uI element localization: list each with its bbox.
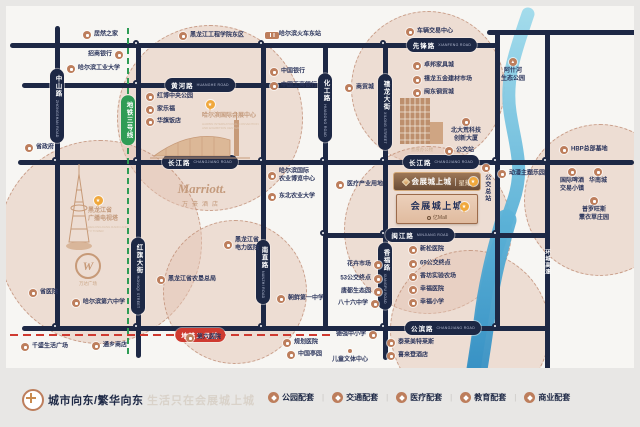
road-junction [133,323,139,329]
road-label-cn: 红旗大街 [133,244,143,274]
convention-center-pin-icon [206,100,215,109]
project-sub-label: 亿Mall [433,214,447,221]
poi-icon [21,343,29,351]
road [545,30,550,368]
poi-label: 黑龙江省农垦总局 [168,276,216,284]
road-label-en: CHANGJIANG ROAD [436,326,475,330]
poi-label: 朝鲜第一中学 [288,295,324,303]
poi-icon [67,65,75,73]
poi-label: 商贸城 [356,84,374,92]
road-junction [52,157,58,163]
transport-icon [332,392,343,403]
poi-icon [482,164,490,172]
tv-tower-pin-icon [94,196,103,205]
road-label-cn: 闽江路 [391,230,414,240]
poi-icon [268,193,276,201]
road-label: 闽江路MINJIANG ROAD [385,228,454,242]
road-junction [320,230,326,236]
poi-label: 53公交终点 [340,275,371,283]
road-label-en: ZHONGSHAN ROAD [55,99,59,137]
road-label-en: NANZHI ROAD [261,271,265,298]
poi-icon [179,32,187,40]
poi-label: 幸福小学 [420,299,444,307]
poi-icon [409,273,417,281]
poi-icon [387,352,395,360]
road-junction [258,40,264,46]
poi-label: 招商银行 [88,51,112,59]
poi-label: 红博中央公园 [157,93,193,101]
road-junction [133,157,139,163]
poi-label: 医疗产业用地 [347,181,383,189]
poi-icon [590,197,598,205]
marriott-wordmark: Marriott. [158,181,246,197]
legend-item: 商业配套 [524,392,570,403]
ashi-river [6,6,634,368]
poi-icon [277,295,285,303]
road-junction [380,323,386,329]
poi-label: 幸福医院 [420,286,444,294]
road-label: 先锋路XIANFENG ROAD [407,38,477,52]
poi-label: 哈尔滨国际 农业博览中心 [279,169,315,184]
road-label-en: XILONG STREET [383,112,387,144]
road-label-cn: 化工路 [320,79,330,102]
poi-label: 通乡商店 [103,342,127,350]
poi-icon [568,168,576,176]
poi-label: 阿什河 生态公园 [501,68,525,83]
road-label-en: MINJIANG ROAD [417,233,449,237]
poi-label: 闽东钢贸城 [424,89,454,97]
poi-icon [413,76,421,84]
train-icon [265,32,279,39]
project-sub: 亿Mall [397,214,477,221]
poi-icon [92,342,100,350]
poi-icon [409,260,417,268]
legend-separator: | [450,393,452,402]
legend-separator: | [514,393,516,402]
poi-label: 中国银行 [281,68,305,76]
poi-label: 唐都生态园 [341,288,371,296]
poi-icon [409,299,417,307]
poi-icon [83,31,91,39]
mall-ring-icon [427,216,431,220]
legend-item-label: 公园配套 [282,392,314,403]
convention-center-label: 哈尔滨国际会展中心 [202,113,256,121]
poi-label: 花卉市场 [347,261,371,269]
poi-label: 省医院 [40,289,58,297]
poi-icon [25,144,33,152]
poi-icon [268,172,276,180]
road-junction [258,323,264,329]
marriott-hotel-logo: Marriott. 万豪酒店 [158,181,246,208]
project-banner-pin-icon [469,177,478,186]
poi-label: 公交站 [456,147,474,155]
road-junction [133,40,139,46]
legend-item: 公园配套 [268,392,314,403]
map-canvas: 哈尔滨国际会展中心 HARBIN INTERNATIONAL CONVENTIO… [6,6,634,368]
poi-label: 卓邦家具城 [424,62,454,70]
poi-label: 黑龙江省 电力医院 [235,238,259,253]
location-map: 哈尔滨国际会展中心 HARBIN INTERNATIONAL CONVENTIO… [0,0,640,427]
poi-label: 华旗饭店 [157,118,181,126]
road-label: 长江路CHANGJIANG ROAD [403,155,479,169]
education-icon [460,392,471,403]
poi-label: 哈尔滨火车东站 [279,31,321,39]
road-junction [492,157,498,163]
road-label-en: XIANGFU ROAD [383,273,387,303]
poi-icon [270,68,278,76]
road-label-en: CHANGJIANG ROAD [434,160,473,164]
road-label: 禧龙大街XILONG STREET [378,74,392,150]
poi-icon [72,299,80,307]
poi-label: 泰莱美特莱斯 [398,339,434,347]
poi-label: 千盛生活广场 [32,343,68,351]
road-label-cn: 环城高速 [543,249,551,275]
poi-icon [413,89,421,97]
poi-icon [283,339,291,347]
road-label-en: HUANGHE ROAD [197,83,229,87]
poi-label: 普罗旺斯 薰衣草庄园 [579,207,609,222]
poi-label: 哈尔滨工业大学 [78,65,120,73]
wanda-plaza-logo: W [75,253,101,279]
legend-item-label: 教育配套 [474,392,506,403]
road-junction [320,157,326,163]
poi-label: 新松医院 [420,246,444,254]
poi-icon [498,170,506,178]
legend-row: 公园配套|交通配套|医疗配套|教育配套|商业配套 [268,390,570,405]
poi-icon [287,351,295,359]
poi-icon [157,276,165,284]
poi-icon [560,146,568,154]
road-label-cn: 香福路 [380,249,390,272]
metro-line-3 [127,28,130,356]
office-building-label: 会展办公楼 [396,147,448,153]
park-icon [268,392,279,403]
poi-label: 家乐福 [157,106,175,114]
footer-slogan-bold: 城市向东/繁华向东 [48,392,144,408]
banner-divider [455,178,456,186]
poi-label: 中国亭园 [298,351,322,359]
poi-label: 第六医院 [197,334,221,342]
metro-line-2 [10,334,332,337]
poi-icon [406,28,414,36]
road-junction [133,80,139,86]
wanda-glyph: W [83,259,94,274]
poi-icon [445,147,453,155]
project-banner: 会展城上城 星耀 [393,172,481,191]
wanda-plaza-label: 万达广场 [70,281,106,287]
road-label: 红旗大街HONGQI STREET [131,238,145,315]
project-banner-name: 会展城上城 [412,176,452,187]
poi-label: 香坊实验农场 [420,273,456,281]
office-building-illustration [396,96,448,146]
poi-label: 八十六中学 [338,300,368,308]
poi-icon [345,84,353,92]
poi-icon [146,93,154,101]
poi-icon [413,62,421,70]
poi-icon [374,288,382,296]
road-label: 环城高速 [543,249,551,275]
road-label: 化工路HUAGONG ROAD [318,73,332,142]
road-label-cn: 先锋路 [413,40,436,50]
poi-icon [369,331,377,339]
road-junction [380,157,386,163]
project-diamond-icon [401,177,409,185]
road-label-cn: 公滨路 [411,323,434,333]
project-site-pin-icon [460,202,469,211]
poi-label: 动漫主题乐园 [509,170,545,178]
legend-separator: | [386,393,388,402]
tv-tower-label-en: HEILONGJIANG RADIO AND TV TOWER [88,225,132,233]
legend-item-label: 商业配套 [538,392,570,403]
legend-item-label: 交通配套 [346,392,378,403]
road-label-en: HUAGONG ROAD [323,104,327,137]
poi-icon [29,289,37,297]
poi-label: 德强中小学 [336,331,366,339]
poi-icon [387,339,395,347]
poi-label: 哈尔滨第六中学 [83,299,125,307]
poi-label: 居然之家 [94,31,118,39]
poi-label: 69公交终点 [420,260,451,268]
legend-item: 交通配套 [332,392,378,403]
poi-label: HBP总部基地 [571,146,608,154]
poi-icon [409,246,417,254]
poi-label: 省政府 [36,144,54,152]
business-icon [524,392,535,403]
poi-icon [409,286,417,294]
poi-label: 黑龙江工程学院东区 [190,32,244,40]
poi-icon [462,118,470,126]
marriott-cn-label: 万豪酒店 [158,199,246,208]
road-junction [380,40,386,46]
compass-icon [22,389,44,411]
legend-item: 教育配套 [460,392,506,403]
road-label-en: HONGQI STREET [136,276,140,309]
legend-item-label: 医疗配套 [410,392,442,403]
tree-icon [509,58,517,66]
medical-icon [396,392,407,403]
poi-icon [594,168,602,176]
road-label-en: XIANFENG ROAD [438,43,471,47]
poi-label: 中国工商银行 [281,82,317,90]
poi-icon [146,106,154,114]
poi-label: 北大荒科技 创新大厦 [451,128,481,143]
poi-icon [224,241,232,249]
poi-label: 喜来登酒店 [398,352,428,360]
poi-icon [186,334,194,342]
road [495,32,500,328]
poi-icon [374,275,382,283]
road [487,30,634,35]
road-label-cn: 长江路 [409,157,432,167]
poi-label: 车辆交易中心 [417,28,453,36]
road-junction [52,323,58,329]
poi-label: 公交总站 [482,174,490,202]
dot-icon [348,349,352,353]
poi-label: 规划医院 [294,339,318,347]
road-label-en: CHANGJIANG ROAD [193,160,232,164]
road-label: 中山路ZHONGSHAN ROAD [50,69,64,143]
poi-label: 国际啤酒 交易小镇 [560,178,584,193]
poi-icon [115,51,123,59]
map-panel: 哈尔滨国际会展中心 HARBIN INTERNATIONAL CONVENTIO… [6,6,634,368]
poi-icon [374,261,382,269]
poi-label: 东北农业大学 [279,193,315,201]
poi-icon [336,181,344,189]
poi-icon [146,118,154,126]
poi-label: 禧龙五金建材市场 [424,76,472,84]
poi-icon [270,82,278,90]
legend-item: 医疗配套 [396,392,442,403]
legend-separator: | [322,393,324,402]
road-label-cn: 禧龙大街 [380,80,390,110]
road-label-cn: 黄河路 [171,80,194,90]
poi-label: 儿童文体中心 [332,357,368,365]
road-junction [542,157,548,163]
road-junction [492,230,498,236]
road-label-cn: 地铁三号线 [123,101,133,139]
poi-label: 华南城 [589,178,607,186]
convention-center-label-en: HARBIN INTERNATIONAL CONVENTION AND EXHI… [202,122,264,130]
tv-tower-label: 黑龙江省 广播电视塔 [88,208,118,224]
road-label: 公滨路CHANGJIANG ROAD [405,321,481,335]
road-label-cn: 中山路 [52,75,62,98]
road-label: 地铁三号线 [121,95,135,145]
road-junction [492,323,498,329]
road-label-cn: 南直路 [258,246,268,269]
poi-icon [371,300,379,308]
road-label: 黄河路HUANGHE ROAD [165,78,235,92]
footer-slogan-light: 生活只在会展城上城 [147,392,255,408]
